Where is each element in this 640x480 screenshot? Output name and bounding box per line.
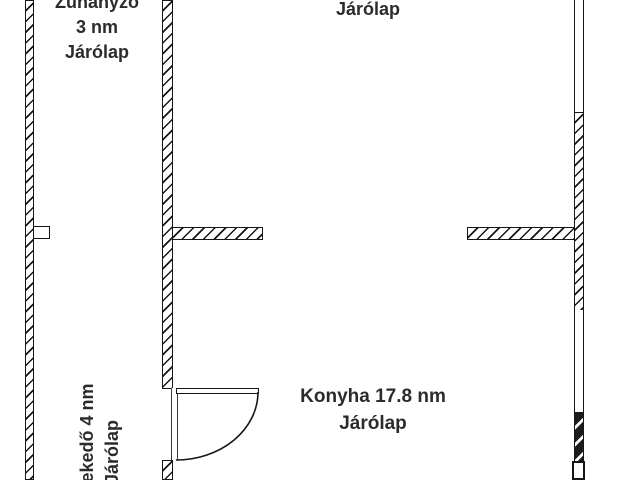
wall-right-footing [572, 461, 585, 480]
corridor-floor: Járólap [100, 382, 125, 480]
window-right-lower [574, 310, 584, 413]
wall-left-exterior [25, 0, 34, 480]
kitchen-floor: Járólap [292, 410, 454, 437]
shower-area: 3 nm [27, 15, 167, 40]
kitchen-name-area: Konyha 17.8 nm [292, 383, 454, 410]
shower-name: Zuhanyzó [27, 0, 167, 15]
door-swing-arc [168, 383, 272, 473]
floor-plan: Zuhanyzó 3 nm Járólap Járólap Konyha 17.… [0, 0, 640, 480]
wall-right-pier [574, 412, 584, 462]
wall-stub-shower [33, 226, 50, 239]
top-room-floor: Járólap [298, 0, 438, 22]
label-kitchen: Konyha 17.8 nm Járólap [292, 383, 454, 437]
wall-horizontal-right [467, 227, 575, 240]
corridor-name-area: Közlekedő 4 nm [75, 382, 100, 480]
label-top-room: Járólap [298, 0, 438, 22]
label-shower-room: Zuhanyzó 3 nm Járólap [27, 0, 167, 65]
shower-floor: Járólap [27, 40, 167, 65]
window-right-top [574, 0, 584, 113]
wall-horizontal-middle [172, 227, 263, 240]
label-corridor: Közlekedő 4 nm Járólap [75, 382, 125, 480]
wall-right-middle [574, 112, 584, 311]
